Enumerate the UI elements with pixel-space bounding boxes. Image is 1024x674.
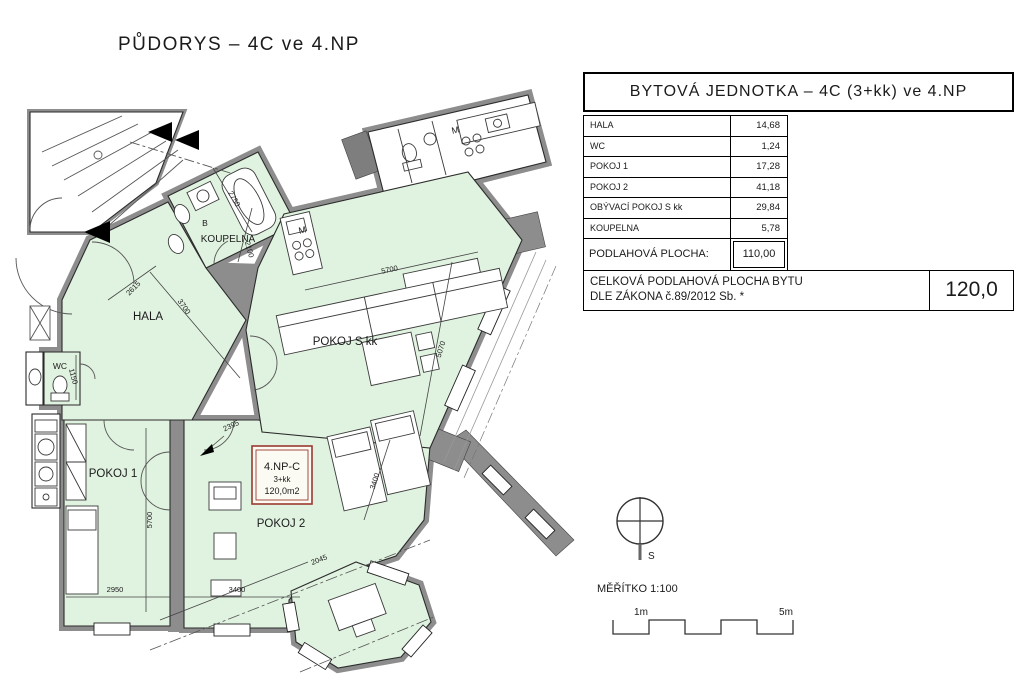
scale-label: MĚŘÍTKO 1:100 bbox=[597, 582, 678, 595]
table-row: HALA 14,68 bbox=[583, 115, 788, 137]
row-label: OBÝVACÍ POKOJ S kk bbox=[584, 198, 731, 218]
total-label-line2: DLE ZÁKONA č.89/2012 Sb. * bbox=[590, 290, 923, 306]
total-label-line1: CELKOVÁ PODLAHOVÁ PLOCHA BYTU bbox=[590, 275, 923, 291]
label-b: B bbox=[202, 218, 208, 228]
area-table: BYTOVÁ JEDNOTKA – 4C (3+kk) ve 4.NP HALA… bbox=[583, 72, 1014, 311]
row-label: POKOJ 2 bbox=[584, 178, 731, 198]
row-label: KOUPELNA bbox=[584, 219, 731, 239]
row-value: 1,24 bbox=[731, 137, 787, 157]
scale-bar: MĚŘÍTKO 1:100 1m 5m bbox=[597, 582, 793, 634]
subtotal-label: PODLAHOVÁ PLOCHA: bbox=[584, 239, 731, 270]
pillow bbox=[68, 510, 96, 530]
toilet bbox=[53, 376, 67, 394]
subtotal-cell: 110,00 bbox=[731, 239, 787, 270]
north-label: S bbox=[648, 551, 655, 562]
table-row: OBÝVACÍ POKOJ S kk 29,84 bbox=[583, 197, 788, 219]
label-koupelna: KOUPELNA bbox=[201, 234, 256, 245]
window bbox=[94, 623, 130, 635]
row-value: 17,28 bbox=[731, 157, 787, 177]
label-pokoj-s-kk: POKOJ S kk bbox=[313, 336, 378, 348]
scale-5m: 5m bbox=[779, 607, 793, 618]
table-row: POKOJ 2 41,18 bbox=[583, 177, 788, 199]
total-row: CELKOVÁ PODLAHOVÁ PLOCHA BYTU DLE ZÁKONA… bbox=[583, 270, 1014, 311]
dim-5700-vertical: 5700 bbox=[145, 512, 154, 529]
unit-area: 120,0m2 bbox=[264, 486, 299, 496]
dim-2950: 2950 bbox=[107, 585, 124, 594]
label-wc: WC bbox=[53, 361, 67, 371]
subtotal-value: 110,00 bbox=[733, 241, 785, 268]
cabinet bbox=[35, 420, 57, 432]
arrow-icon bbox=[175, 130, 199, 150]
floorplan-sheet: PŮDORYS – 4C ve 4.NP bbox=[0, 0, 1024, 674]
row-value: 41,18 bbox=[731, 178, 787, 198]
row-value: 29,84 bbox=[731, 198, 787, 218]
label-hala: HALA bbox=[133, 311, 163, 323]
row-label: POKOJ 1 bbox=[584, 157, 731, 177]
table-rows: HALA 14,68 WC 1,24 POKOJ 1 17,28 POKOJ 2… bbox=[583, 115, 788, 240]
label-pokoj2: POKOJ 2 bbox=[257, 518, 306, 530]
table-row: KOUPELNA 5,78 bbox=[583, 218, 788, 240]
dryer bbox=[35, 462, 57, 486]
unit-code: 4.NP-C bbox=[264, 461, 300, 473]
total-value: 120,0 bbox=[929, 271, 1013, 310]
small-sink bbox=[29, 369, 41, 385]
row-value: 14,68 bbox=[731, 116, 787, 136]
scale-1m: 1m bbox=[634, 607, 648, 618]
row-label: WC bbox=[584, 137, 731, 157]
table-row: POKOJ 1 17,28 bbox=[583, 156, 788, 178]
table-row: WC 1,24 bbox=[583, 136, 788, 158]
row-label: HALA bbox=[584, 116, 731, 136]
side-table bbox=[214, 533, 236, 559]
toilet-tank bbox=[51, 393, 69, 401]
unit-layout: 3+kk bbox=[273, 475, 291, 484]
window bbox=[214, 624, 250, 636]
total-label: CELKOVÁ PODLAHOVÁ PLOCHA BYTU DLE ZÁKONA… bbox=[584, 271, 929, 310]
table-header: BYTOVÁ JEDNOTKA – 4C (3+kk) ve 4.NP bbox=[583, 72, 1014, 112]
subtotal-row: PODLAHOVÁ PLOCHA: 110,00 bbox=[583, 238, 788, 271]
cabinet bbox=[35, 488, 57, 506]
label-pokoj1: POKOJ 1 bbox=[89, 468, 138, 480]
north-arrow-icon: S bbox=[617, 497, 663, 562]
row-value: 5,78 bbox=[731, 219, 787, 239]
unit-info-box: 4.NP-C 3+kk 120,0m2 bbox=[252, 446, 312, 504]
dim-3400: 3400 bbox=[229, 585, 246, 594]
